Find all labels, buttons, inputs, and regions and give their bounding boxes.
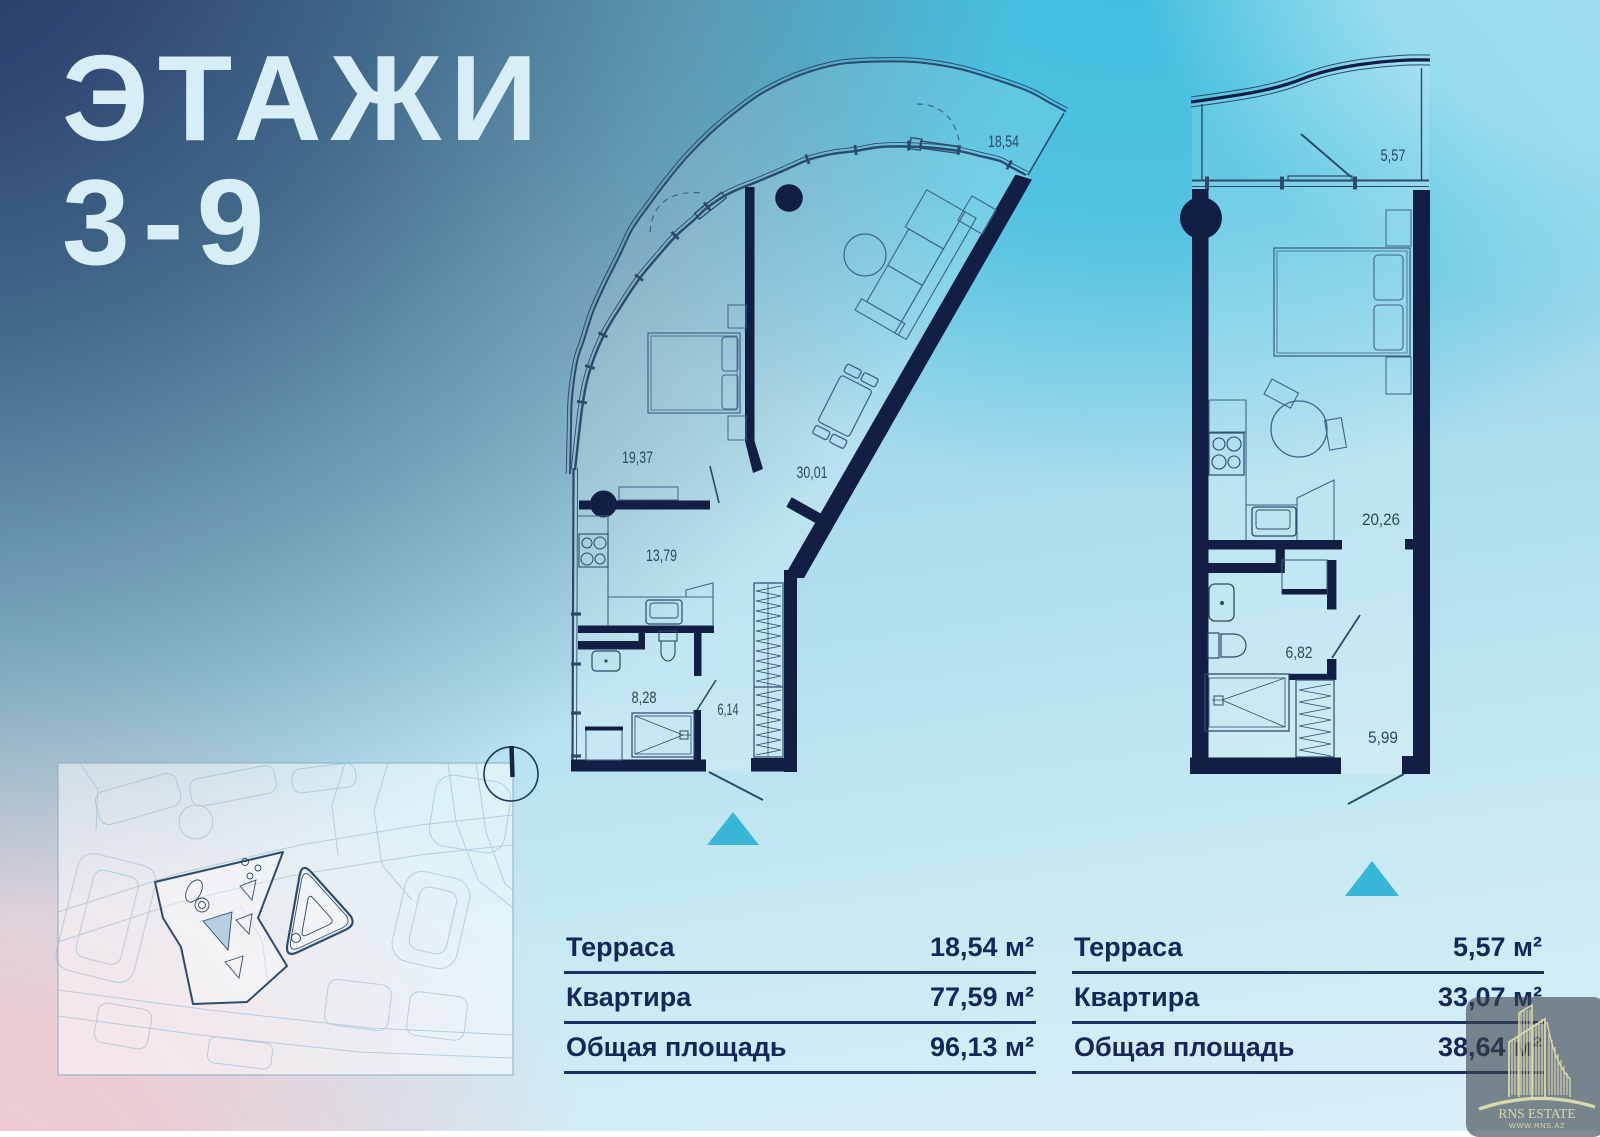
svg-text:RNS ESTATE: RNS ESTATE (1498, 1106, 1575, 1121)
svg-text:WWW.RNS.AZ: WWW.RNS.AZ (1509, 1121, 1565, 1130)
